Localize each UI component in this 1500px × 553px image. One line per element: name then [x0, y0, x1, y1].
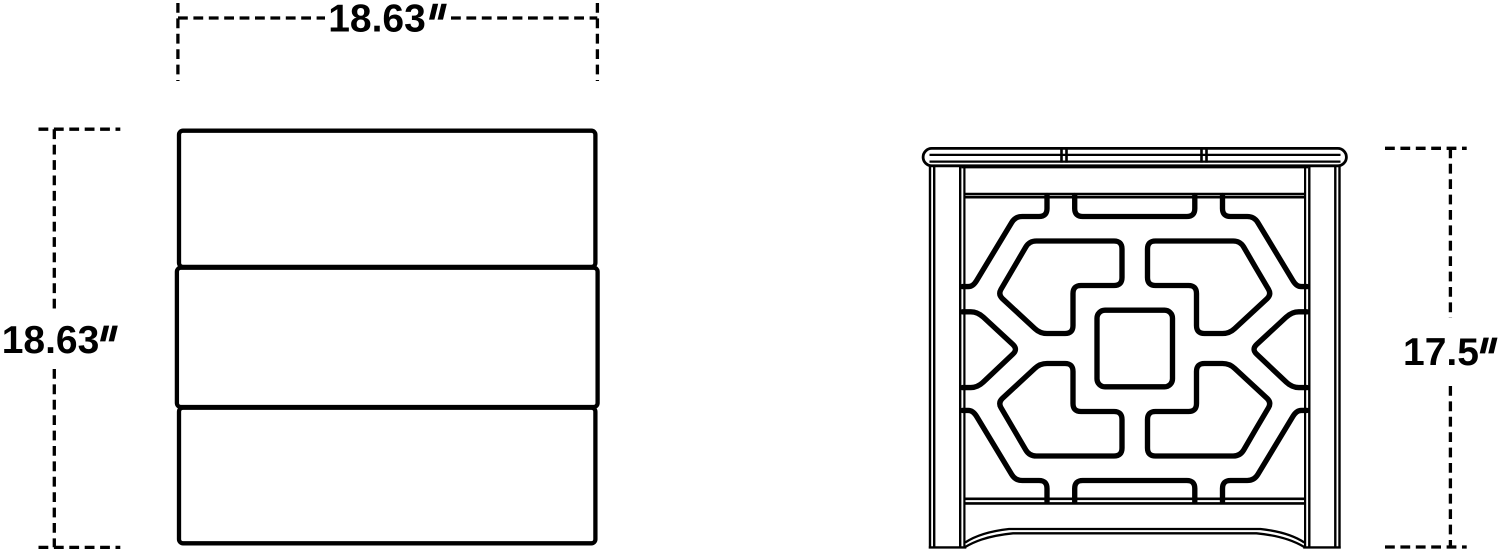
- svg-text:17.5: 17.5: [1403, 331, 1479, 374]
- svg-text:18.63: 18.63: [328, 0, 426, 41]
- svg-text:18.63: 18.63: [2, 319, 100, 362]
